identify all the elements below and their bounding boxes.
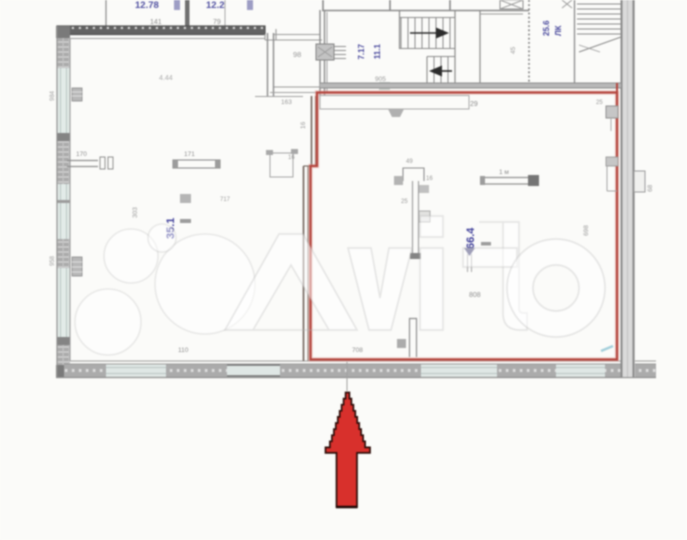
svg-text:ЛК: ЛК: [554, 25, 563, 36]
svg-text:12.2: 12.2: [206, 0, 225, 11]
svg-text:905: 905: [375, 76, 386, 83]
svg-text:16: 16: [300, 121, 307, 129]
svg-text:303: 303: [132, 207, 139, 218]
svg-text:98: 98: [293, 50, 301, 59]
svg-text:49: 49: [406, 159, 413, 165]
svg-text:984: 984: [50, 90, 56, 101]
svg-text:16: 16: [426, 176, 433, 182]
svg-text:717: 717: [220, 197, 231, 203]
svg-text:66.4: 66.4: [465, 227, 477, 249]
svg-text:708: 708: [352, 347, 363, 354]
svg-text:25: 25: [596, 100, 603, 106]
svg-text:68: 68: [647, 184, 654, 192]
svg-text:808: 808: [469, 292, 481, 299]
svg-text:45: 45: [510, 46, 517, 54]
svg-text:1 м: 1 м: [499, 169, 509, 176]
svg-text:25.6: 25.6: [542, 20, 551, 36]
svg-text:25: 25: [401, 199, 408, 205]
svg-text:11.1: 11.1: [373, 43, 382, 59]
svg-text:4.44: 4.44: [159, 75, 173, 82]
svg-text:958: 958: [50, 255, 56, 266]
svg-text:79: 79: [213, 19, 221, 26]
svg-text:29: 29: [470, 101, 478, 108]
svg-text:7.17: 7.17: [357, 43, 366, 59]
svg-text:12.78: 12.78: [135, 0, 159, 11]
svg-text:110: 110: [178, 347, 189, 354]
svg-text:698: 698: [583, 225, 590, 236]
svg-text:171: 171: [184, 151, 195, 158]
svg-text:170: 170: [76, 151, 87, 158]
svg-text:16: 16: [288, 155, 295, 161]
svg-text:163: 163: [281, 99, 292, 106]
svg-text:141: 141: [150, 19, 162, 26]
